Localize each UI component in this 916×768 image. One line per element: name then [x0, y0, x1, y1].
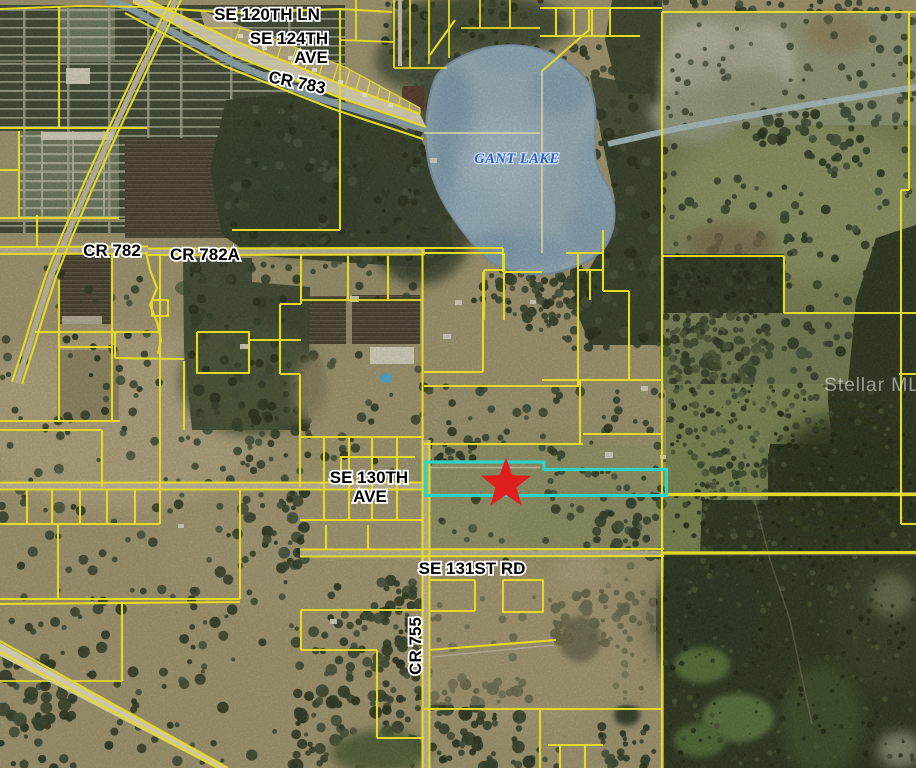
svg-text:SE 124TH: SE 124TH	[250, 29, 328, 48]
svg-text:CR 755: CR 755	[406, 617, 425, 675]
svg-text:CR 782A: CR 782A	[170, 245, 240, 264]
svg-text:Stellar MLS.: Stellar MLS.	[824, 374, 916, 396]
svg-text:SE 120TH LN: SE 120TH LN	[214, 5, 320, 24]
svg-text:AVE: AVE	[294, 48, 328, 67]
svg-text:SE 130TH: SE 130TH	[330, 468, 408, 487]
svg-text:GANT LAKE: GANT LAKE	[474, 151, 559, 167]
svg-text:CR 782: CR 782	[83, 241, 141, 260]
svg-text:AVE: AVE	[353, 487, 387, 506]
svg-text:SE 131ST RD: SE 131ST RD	[419, 559, 526, 578]
